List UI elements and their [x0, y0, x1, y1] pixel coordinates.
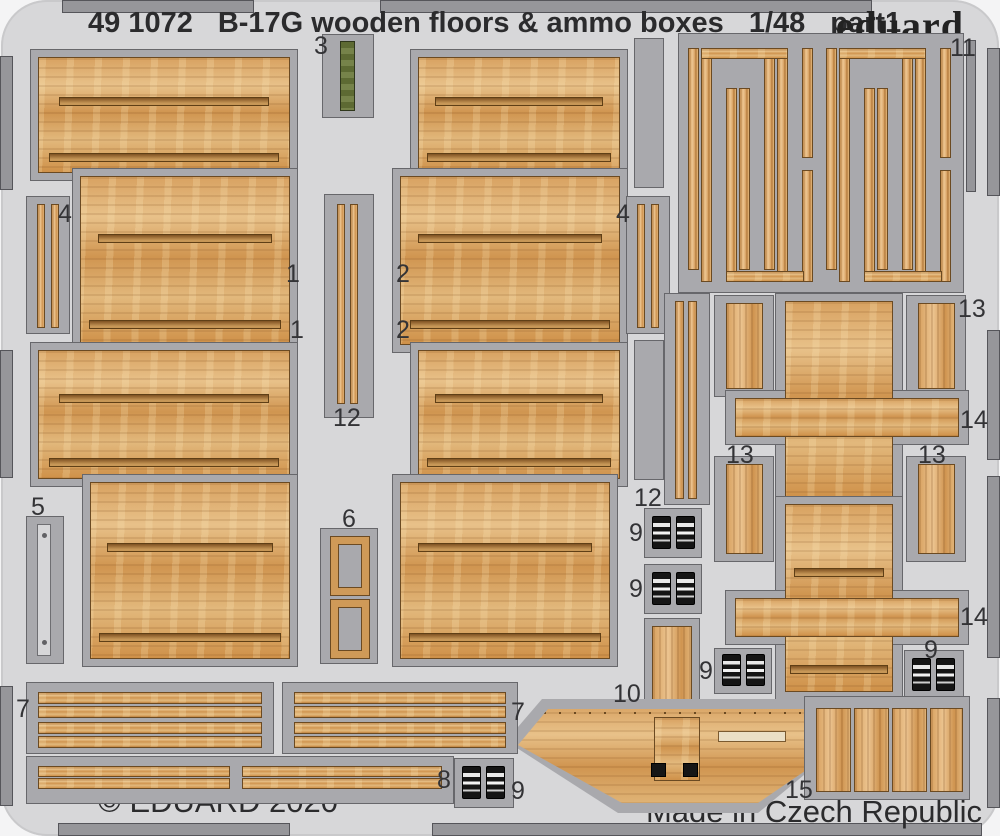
edge-bar — [0, 686, 13, 806]
cross-wing-part14 — [735, 598, 959, 637]
strip-part11 — [726, 88, 737, 282]
strip-part11 — [864, 88, 875, 282]
catalog-number: 49 1072 — [88, 7, 193, 40]
floor-panel-1 — [38, 350, 290, 479]
slat-part8 — [38, 778, 230, 789]
frame — [664, 293, 710, 505]
slat-part7 — [294, 736, 506, 748]
ammo-box-part9 — [912, 658, 931, 691]
strip-part11 — [940, 48, 951, 158]
frame — [634, 38, 664, 188]
edge-bar — [987, 48, 1000, 196]
photoetch-sheet-photo: 49 1072 B-17G wooden floors & ammo boxes… — [0, 0, 1000, 836]
strip-part11 — [826, 48, 837, 270]
fitting-detail — [683, 763, 698, 777]
ammo-belt-part3 — [340, 41, 355, 111]
strip-part11 — [701, 48, 712, 282]
frame — [26, 196, 70, 334]
slat-part7 — [38, 736, 262, 748]
metal-strip-part5 — [37, 524, 51, 656]
strip-part11 — [802, 170, 813, 282]
strip-part11 — [902, 48, 913, 270]
ammo-box-part9 — [936, 658, 955, 691]
slat-part7 — [294, 692, 506, 704]
ammo-box-part9 — [652, 516, 671, 549]
strip-part11 — [839, 48, 850, 282]
ammo-box-part9 — [722, 654, 741, 686]
strip-part11 — [915, 48, 926, 282]
strip-part4 — [51, 204, 59, 328]
ammo-box-part9 — [462, 766, 481, 799]
wood-frame-part6 — [331, 537, 369, 595]
ammo-box-part9 — [676, 516, 695, 549]
strip-part12 — [337, 204, 345, 404]
edge-bar — [966, 40, 976, 192]
plank-detail — [718, 731, 786, 742]
frame — [634, 340, 664, 480]
strip-part12 — [350, 204, 358, 404]
floor-panel-1 — [80, 176, 290, 345]
ammo-box-part9 — [676, 572, 695, 605]
strip-part11 — [877, 88, 888, 270]
edge-bar — [987, 330, 1000, 460]
edge-bar — [0, 56, 13, 190]
strip-part11 — [739, 88, 750, 270]
wood-frame-part6 — [331, 600, 369, 658]
panel-part13 — [918, 464, 955, 554]
strip-part11 — [777, 48, 788, 282]
strip-part11 — [839, 48, 926, 59]
ammo-box-part9 — [746, 654, 765, 686]
floor-panel-1 — [90, 482, 290, 659]
strip-part11 — [940, 170, 951, 282]
frame — [324, 194, 374, 418]
ammo-box-part9 — [486, 766, 505, 799]
box-side-part15 — [816, 708, 851, 792]
strip-part4 — [37, 204, 45, 328]
slat-part7 — [294, 722, 506, 734]
strip-part11 — [764, 48, 775, 270]
strip-part4 — [651, 204, 659, 328]
box-side-part15 — [892, 708, 927, 792]
floor-panel-1 — [38, 57, 290, 173]
floor-panel-2 — [400, 482, 610, 659]
product-title: B-17G wooden floors & ammo boxes — [218, 7, 724, 40]
strip-part11 — [701, 48, 788, 59]
box-side-part15 — [854, 708, 889, 792]
edge-bar — [0, 350, 13, 478]
slat-part7 — [294, 706, 506, 718]
slat-part7 — [38, 706, 262, 718]
panel-part13 — [726, 464, 763, 554]
slat-part7 — [38, 692, 262, 704]
floor-panel-2 — [400, 176, 620, 345]
edge-bar — [58, 823, 290, 836]
box-side-part15 — [930, 708, 963, 792]
panel-part13 — [726, 303, 763, 389]
strip-part11 — [864, 271, 942, 282]
slat-part8 — [38, 766, 230, 777]
cross-wing-part14 — [735, 398, 959, 437]
edge-bar — [987, 698, 1000, 808]
ammo-box-part9 — [652, 572, 671, 605]
strip-part11 — [726, 271, 804, 282]
serpentine-part11 — [678, 33, 964, 293]
strip-part12 — [675, 301, 684, 499]
strip-part12 — [688, 301, 697, 499]
strip-part11 — [688, 48, 699, 270]
slat-part7 — [38, 722, 262, 734]
strip-part11 — [802, 48, 813, 158]
strip-part4 — [637, 204, 645, 328]
fitting-detail — [651, 763, 666, 777]
floor-panel-2 — [418, 57, 620, 173]
slat-part8 — [242, 778, 442, 789]
panel-part13 — [918, 303, 955, 389]
edge-bar — [987, 476, 1000, 658]
floor-panel-2 — [418, 350, 620, 479]
slat-part8 — [242, 766, 442, 777]
